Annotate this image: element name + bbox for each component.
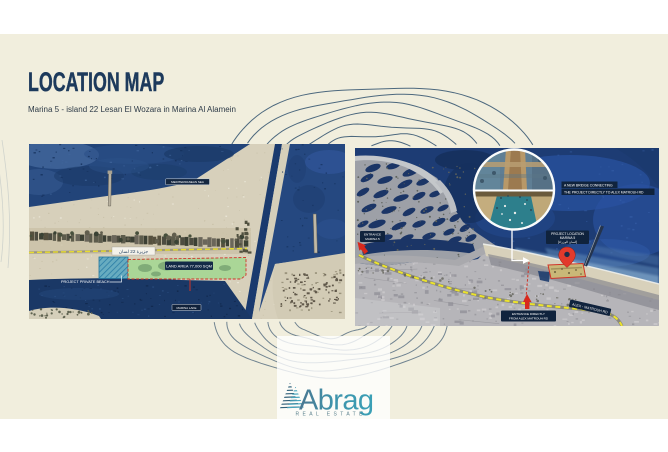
- svg-text:A NEW BRIDGE CONNECTING: A NEW BRIDGE CONNECTING: [564, 183, 613, 187]
- svg-text:REAL ESTATE: REAL ESTATE: [296, 412, 366, 418]
- svg-text:THE PROJECT DIRECTLY TO ALEX M: THE PROJECT DIRECTLY TO ALEX MATROUH RD: [564, 190, 644, 194]
- svg-text:MARINA 5: MARINA 5: [365, 237, 380, 241]
- svg-text:PROJECT PRIVATE BEACH: PROJECT PRIVATE BEACH: [61, 280, 110, 284]
- svg-text:MARINA LAKE: MARINA LAKE: [176, 306, 196, 310]
- svg-text:LAND AREA 77,000 SQM: LAND AREA 77,000 SQM: [166, 264, 212, 269]
- svg-text:MEDITERRANEAN SEA: MEDITERRANEAN SEA: [171, 180, 204, 184]
- svg-text:(لسان الوزراء): (لسان الوزراء): [558, 240, 577, 244]
- svg-text:FROM ALEX MATROUH RD: FROM ALEX MATROUH RD: [509, 316, 549, 320]
